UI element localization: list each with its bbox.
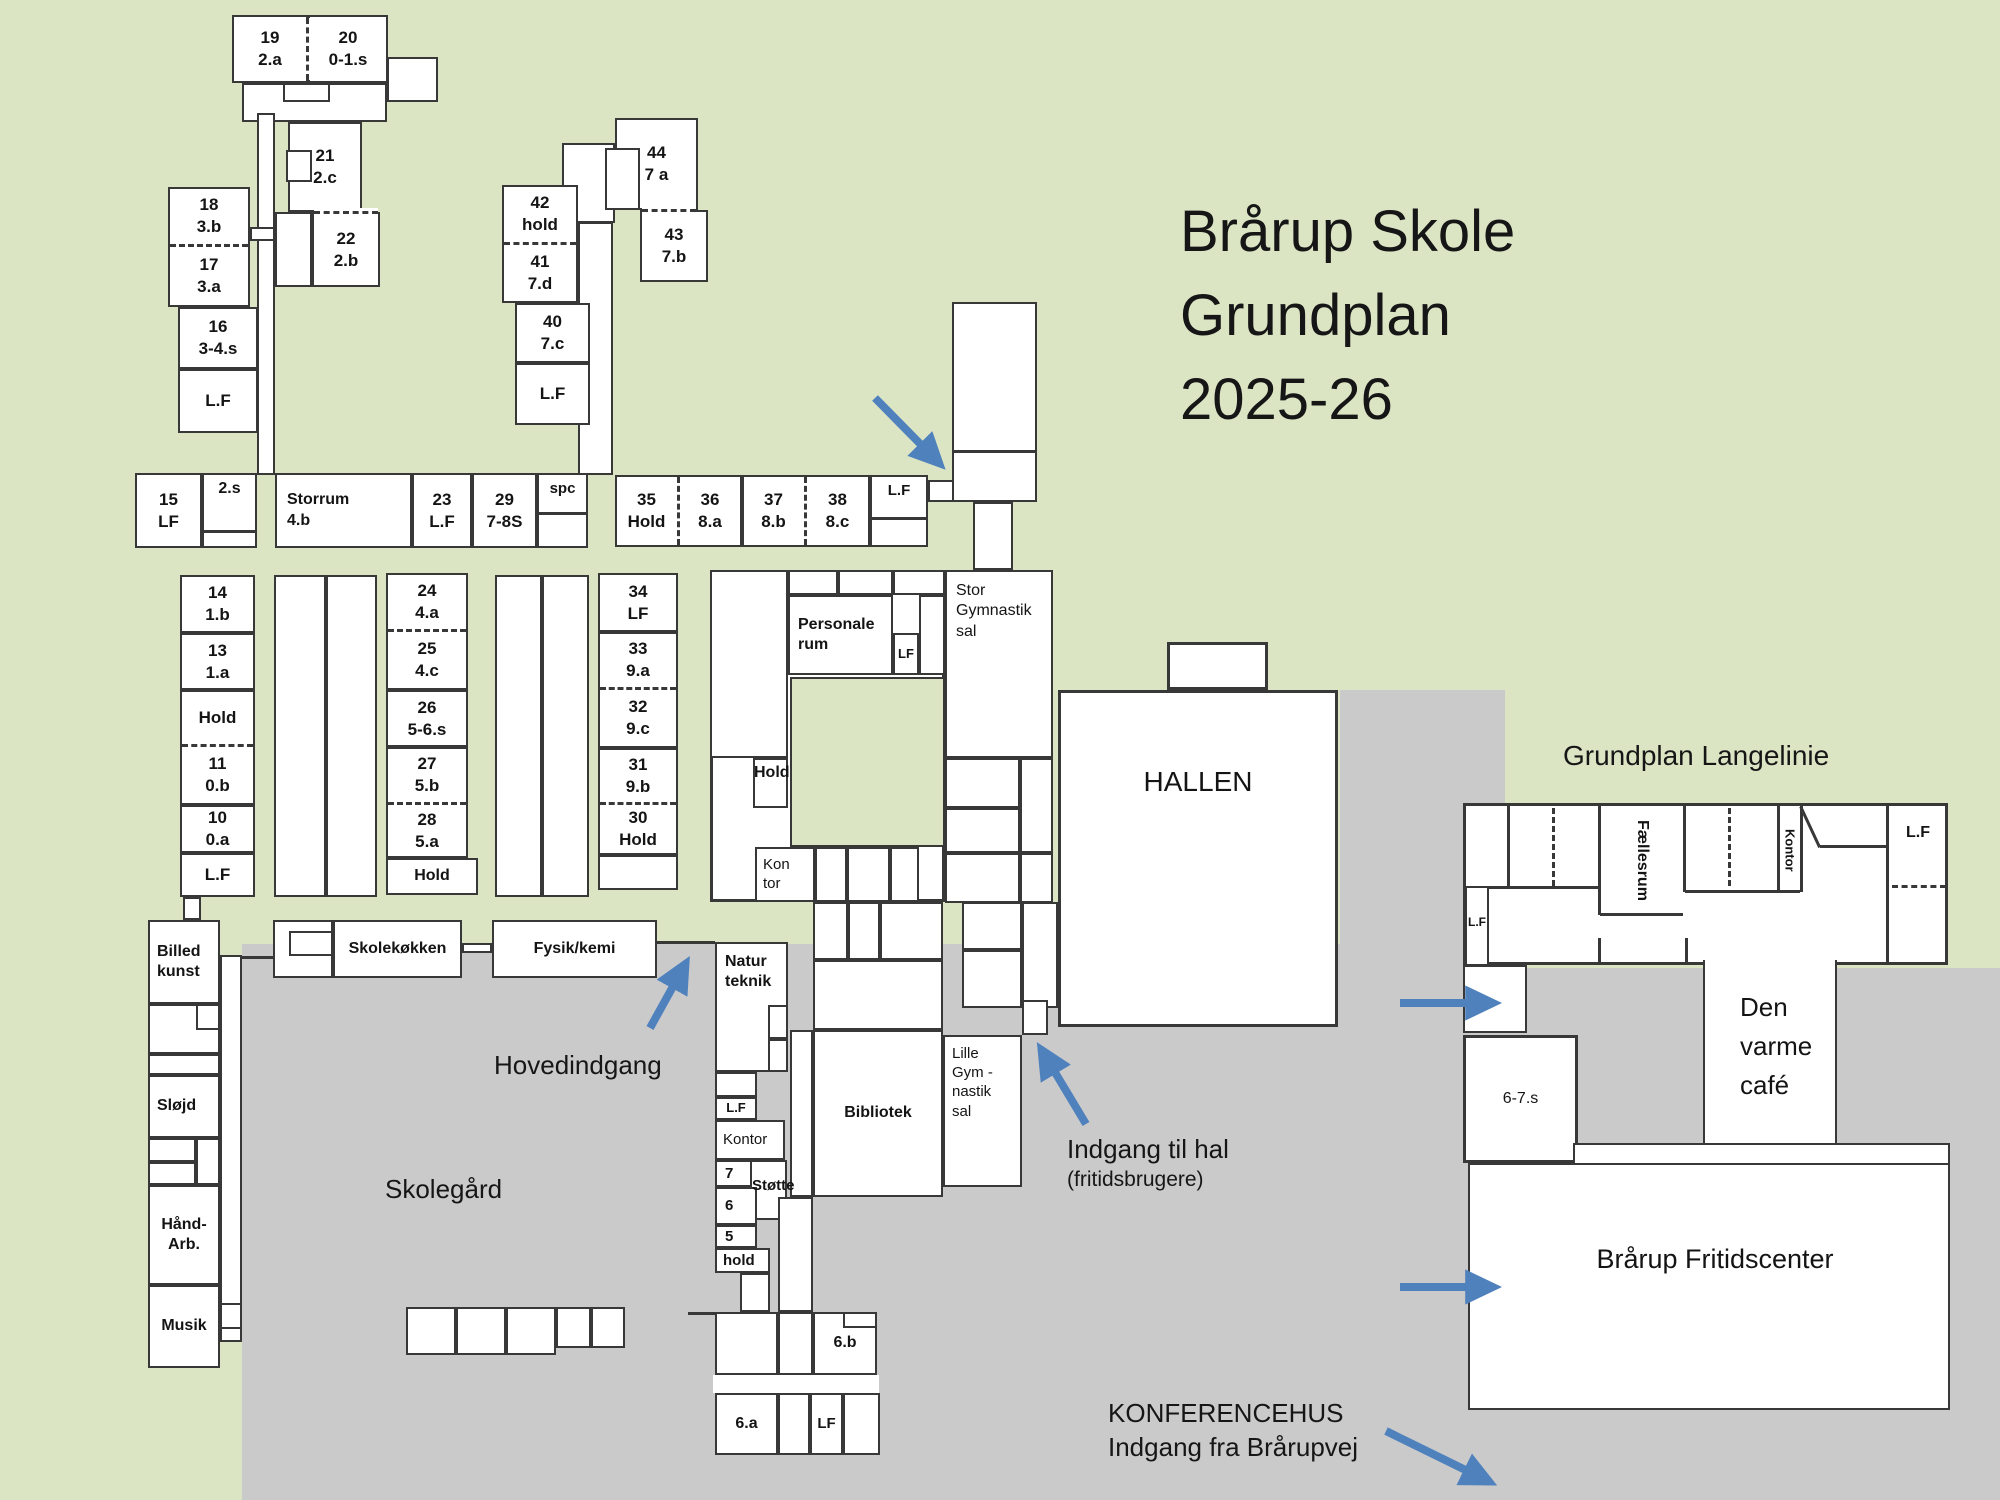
- structure: [710, 570, 788, 758]
- wall: [1685, 890, 1800, 893]
- structure: [495, 575, 542, 897]
- room-34: 34 LF: [598, 573, 678, 632]
- wall: [1685, 938, 1688, 965]
- room-label-lf_i: L.F: [1464, 915, 1490, 931]
- dashed-partition: [388, 629, 466, 632]
- structure: [945, 808, 1020, 853]
- structure: [1022, 1000, 1048, 1035]
- room-label-lf_h: L.F: [1893, 822, 1943, 844]
- room-20: 20 0-1.s: [308, 15, 388, 83]
- structure: [257, 113, 275, 475]
- structure: [289, 931, 333, 956]
- room-lf_d: L.F: [180, 853, 255, 897]
- structure: [838, 570, 893, 595]
- structure: [1167, 642, 1268, 690]
- structure: [598, 855, 678, 890]
- room-label-hallen: HALLEN: [1108, 766, 1288, 798]
- room-haand: Hånd- Arb.: [148, 1185, 220, 1285]
- room-41: 41 7.d: [502, 243, 578, 303]
- room-17: 17 3.a: [168, 245, 250, 307]
- structure: [148, 1138, 196, 1162]
- hovedindgang-label: Hovedindgang: [494, 1050, 662, 1081]
- structure: [843, 1312, 877, 1328]
- room-5: 5: [715, 1225, 757, 1248]
- room-22: 22 2.b: [312, 212, 380, 287]
- room-13: 13 1.a: [180, 633, 255, 690]
- structure: [387, 57, 438, 102]
- wall: [688, 1312, 715, 1315]
- room-hold_d: hold: [715, 1248, 770, 1273]
- structure: [813, 902, 848, 960]
- room-18: 18 3.b: [168, 187, 250, 245]
- dashed-partition: [642, 209, 696, 212]
- room-lf_c: L.F: [870, 475, 928, 547]
- dashed-partition: [1552, 808, 1555, 886]
- structure: [286, 150, 312, 182]
- dashed-partition: [182, 744, 253, 747]
- dashed-partition: [306, 18, 309, 80]
- structure: [815, 847, 847, 902]
- room-label-fritidscenter: Brårup Fritidscenter: [1520, 1244, 1910, 1276]
- page-title: Brårup Skole Grundplan 2025-26: [1180, 190, 1515, 442]
- room-15: 15 LF: [135, 473, 202, 548]
- structure: [456, 1307, 506, 1355]
- room-hold_a: Hold: [180, 690, 255, 745]
- structure: [893, 570, 945, 595]
- walkway: [713, 1375, 879, 1393]
- room-11: 11 0.b: [180, 745, 255, 805]
- room-label-faellesrum: Fællesrum: [1602, 810, 1681, 910]
- structure: [919, 595, 945, 675]
- room-label-kontor_c: Kontor: [1779, 810, 1799, 890]
- room-67s: 6-7.s: [1463, 1035, 1578, 1163]
- structure: [605, 148, 640, 210]
- room-14: 14 1.b: [180, 575, 255, 633]
- structure: [788, 570, 838, 595]
- structure: [973, 502, 1013, 570]
- structure: [556, 1307, 591, 1348]
- indgang-til-hal-sublabel: (fritidsbrugere): [1067, 1168, 1204, 1192]
- wall: [1487, 886, 1600, 889]
- structure: [542, 575, 589, 897]
- room-storrum: Storrum 4.b: [275, 473, 412, 548]
- wall: [242, 956, 273, 959]
- room-6a: 6.a: [715, 1393, 778, 1455]
- room-personale: Personale rum: [788, 595, 893, 675]
- room-33: 33 9.a: [598, 632, 678, 688]
- structure: [196, 1004, 220, 1030]
- room-lf_f: L.F: [715, 1097, 757, 1120]
- structure: [715, 1312, 778, 1375]
- wall: [1600, 913, 1683, 916]
- room-lf_e: LF: [893, 633, 919, 675]
- room-43: 43 7.b: [640, 210, 708, 282]
- structure: [952, 302, 1037, 452]
- dashed-partition: [804, 477, 807, 545]
- structure: [1463, 803, 1948, 965]
- wall: [204, 530, 255, 533]
- structure: [843, 1393, 880, 1455]
- dashed-partition: [677, 477, 680, 545]
- room-19: 19 2.a: [232, 15, 308, 83]
- room-skolekokken: Skolekøkken: [333, 920, 462, 978]
- room-label-hold_c: Hold: [754, 762, 816, 784]
- structure: [813, 960, 943, 1030]
- room-28: 28 5.a: [386, 803, 468, 858]
- structure: [148, 1054, 220, 1075]
- structure: [283, 83, 330, 102]
- structure: [740, 1273, 770, 1312]
- room-32: 32 9.c: [598, 688, 678, 748]
- structure: [1463, 965, 1527, 1033]
- dashed-partition: [1728, 808, 1731, 886]
- room-stor_gym: Stor Gymnastik sal: [945, 570, 1053, 758]
- structure: [847, 847, 890, 902]
- dashed-partition: [600, 802, 676, 805]
- structure: [196, 1138, 220, 1185]
- room-hold_b: Hold: [386, 858, 478, 895]
- room-29: 29 7-8S: [472, 473, 537, 548]
- room-23: 23 L.F: [412, 473, 472, 548]
- indgang-til-hal-label: Indgang til hal: [1067, 1134, 1229, 1165]
- dashed-partition: [600, 687, 676, 690]
- wall: [1683, 805, 1686, 892]
- structure: [768, 1039, 788, 1072]
- room-40: 40 7.c: [515, 303, 590, 363]
- wall: [1800, 805, 1803, 892]
- structure: [778, 1197, 813, 1312]
- room-label-cafe: Den varme café: [1740, 984, 1850, 1109]
- room-label-stotte: Støtte: [752, 1176, 824, 1196]
- room-10: 10 0.a: [180, 805, 255, 853]
- structure: [1573, 1143, 1950, 1165]
- room-kontor_a: Kon tor: [755, 847, 815, 902]
- structure: [790, 1030, 813, 1197]
- structure: [880, 902, 943, 960]
- room-27: 27 5.b: [386, 747, 468, 803]
- skolegaard-label: Skolegård: [385, 1174, 502, 1205]
- langelinie-heading: Grundplan Langelinie: [1563, 740, 1829, 772]
- structure: [591, 1307, 625, 1348]
- structure: [274, 575, 326, 897]
- floor-plan: 19 2.a20 0-1.s21 2.c22 2.b18 3.b17 3.a16…: [0, 0, 2000, 1500]
- room-25: 25 4.c: [386, 630, 468, 690]
- room-spc: spc: [537, 473, 588, 548]
- room-26: 26 5-6.s: [386, 690, 468, 747]
- room-fysik: Fysik/kemi: [492, 920, 657, 978]
- structure: [462, 943, 492, 953]
- structure: [406, 1307, 456, 1355]
- structure: [250, 227, 275, 241]
- room-kontor_b: Kontor: [715, 1120, 785, 1160]
- structure: [1022, 902, 1058, 1008]
- wall: [1820, 845, 1886, 848]
- room-24: 24 4.a: [386, 573, 468, 630]
- room-37: 37 8.b: [742, 475, 805, 547]
- wall: [657, 941, 715, 944]
- room-lille_gym: Lille Gym - nastik sal: [943, 1035, 1022, 1187]
- konferencehus-label: KONFERENCEHUS Indgang fra Brårupvej: [1108, 1396, 1358, 1464]
- room-lf_a: L.F: [178, 369, 258, 433]
- structure: [1468, 1163, 1950, 1410]
- room-billed: Billed kunst: [148, 920, 220, 1004]
- structure: [962, 902, 1022, 950]
- wall: [954, 450, 1035, 453]
- dashed-partition: [170, 244, 248, 247]
- room-31: 31 9.b: [598, 748, 678, 803]
- wall: [872, 517, 926, 520]
- room-musik: Musik: [148, 1285, 220, 1368]
- room-2s: 2.s: [202, 473, 257, 548]
- dashed-partition: [388, 802, 466, 805]
- room-lf_g: LF: [810, 1393, 843, 1455]
- room-16: 16 3-4.s: [178, 307, 258, 369]
- structure: [945, 853, 1020, 903]
- structure: [890, 847, 919, 902]
- dashed-partition: [504, 242, 576, 245]
- wall: [1598, 805, 1601, 915]
- room-6: 6: [715, 1187, 757, 1225]
- structure: [768, 1005, 788, 1039]
- wall: [1507, 805, 1510, 888]
- structure: [183, 897, 201, 920]
- structure: [952, 450, 1037, 502]
- structure: [275, 212, 312, 287]
- room-36: 36 8.a: [678, 475, 742, 547]
- structure: [962, 950, 1022, 1008]
- structure: [928, 480, 954, 502]
- structure: [1020, 853, 1053, 903]
- wall: [1886, 805, 1889, 963]
- structure: [715, 1072, 757, 1097]
- structure: [848, 902, 880, 960]
- room-lf_b: L.F: [515, 363, 590, 425]
- structure: [1058, 690, 1338, 1027]
- structure: [220, 1303, 242, 1329]
- structure: [778, 1312, 813, 1375]
- dashed-partition: [1892, 885, 1946, 888]
- structure: [1020, 758, 1053, 853]
- structure: [220, 955, 242, 1342]
- room-35: 35 Hold: [615, 475, 678, 547]
- room-38: 38 8.c: [805, 475, 870, 547]
- structure: [506, 1307, 556, 1355]
- room-30: 30 Hold: [598, 803, 678, 855]
- structure: [148, 1162, 196, 1185]
- room-slojd: Sløjd: [148, 1075, 220, 1138]
- wall: [1598, 938, 1601, 965]
- room-42: 42 hold: [502, 185, 578, 243]
- structure: [326, 575, 377, 897]
- dashed-partition: [314, 211, 378, 214]
- room-bibliotek: Bibliotek: [813, 1030, 943, 1197]
- structure: [778, 1393, 810, 1455]
- structure: [945, 758, 1020, 808]
- wall: [539, 512, 586, 515]
